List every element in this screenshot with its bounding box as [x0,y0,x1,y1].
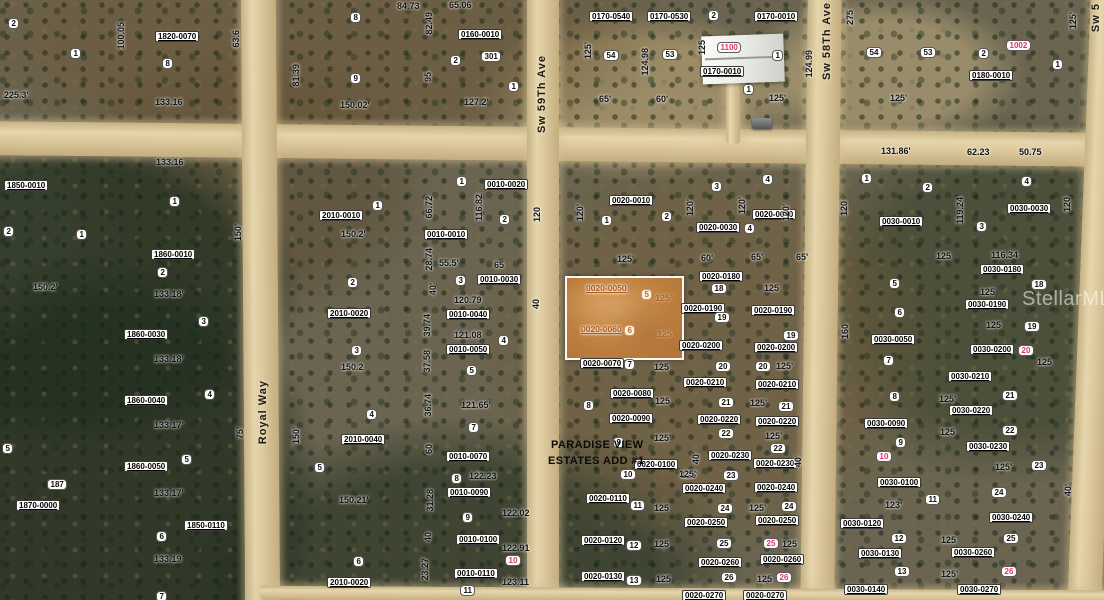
lot-number-badge: 9 [462,512,473,523]
parcel-id-label: 0020-0090 [609,413,653,424]
dimension-label: 65' [796,252,808,262]
parcel-id-label: 0030-0120 [840,518,884,529]
dimension-label: 133.19 [154,554,182,564]
lot-number-badge: 8 [451,473,462,484]
dimension-label: 123' [885,500,902,510]
dimension-label: 125' [617,254,634,264]
parcel-id-label: 0030-0090 [864,418,908,429]
parcel-id-label: 0030-0270 [957,584,1001,595]
dimension-label: 125 [940,427,955,437]
parcel-id-label: 0020-0180 [699,271,743,282]
parcel-id-label: 0030-0130 [858,548,902,559]
dimension-label-vertical: 40 [423,532,433,542]
lot-number-badge: 2 [661,211,672,222]
dimension-label: 125' [749,503,766,513]
lot-number-badge: 6 [156,531,167,542]
lot-number-badge: 1 [169,196,180,207]
lot-number-badge: 23 [1031,460,1047,471]
lot-number-badge: 12 [891,533,907,544]
dimension-label: 121.65' [461,400,491,410]
lot-number-badge-highlighted: 25 [763,538,779,549]
dimension-label: 150.2 [341,362,364,372]
dimension-label: 133.17' [154,420,184,430]
lot-number-badge: 3 [455,275,466,286]
dimension-label: 127.2' [464,97,489,107]
parcel-id-label: 0020-0260 [760,554,804,565]
parcel-id-label: 0020-0080 [610,388,654,399]
parcel-id-label: 0020-0220 [697,414,741,425]
dimension-label: 125 [654,539,669,549]
parcel-id-label: 0030-0260 [951,547,995,558]
lot-number-badge: 2 [347,277,358,288]
lot-number-badge: 7 [624,359,635,370]
parcel-id-label: 1820-0070 [155,31,199,42]
dimension-label-vertical: 23.27 [420,558,430,581]
dimension-label-vertical: 40' [793,455,803,467]
lot-number-badge: 25 [1003,533,1019,544]
lot-number-badge: 3 [711,181,722,192]
dimension-label: 125 [764,283,779,293]
lot-number-badge: 26 [721,572,737,583]
lot-number-badge: 12 [626,540,642,551]
parcel-id-label: 0160-0010 [458,29,502,40]
parcel-id-label: 1860-0040 [124,395,168,406]
dimension-label: 125' [765,431,782,441]
dimension-label-vertical: 120' [575,204,585,221]
parcel-id-label: 0180-0010 [969,70,1013,81]
parcel-id-label: 0010-0050 [446,344,490,355]
watermark: StellarMLS [1022,288,1104,311]
dimension-label-vertical: 124.99 [804,50,814,78]
parcel-id-label: 0020-0070 [580,358,624,369]
dimension-label: 122.02 [502,508,530,518]
lot-number-badge-highlighted: 10 [876,451,892,462]
parcel-id-label: 0010-0030 [477,274,521,285]
lot-number-badge: 53 [662,49,678,60]
lot-number-badge: 3 [198,316,209,327]
lot-number-badge: 5 [181,454,192,465]
dimension-label-vertical: 120' [685,199,695,216]
lot-number-badge: 1 [743,84,754,95]
dimension-label: 121.08 [454,330,482,340]
lot-number-badge: 2 [978,48,989,59]
parcel-id-label: 0170-0010 [754,11,798,22]
lot-number-badge: 11 [630,500,645,511]
dimension-label-vertical: 37.58 [422,350,432,373]
dimension-label: 125' [679,469,696,479]
lot-number-badge: 1 [508,81,519,92]
dimension-label: 125' [941,569,958,579]
dimension-label-vertical: 63.6 [231,30,241,48]
lot-number-badge: 6 [353,556,364,567]
dimension-label: 60' [701,253,713,263]
dimension-label-vertical: 120 [1062,197,1072,212]
parcel-id-label: 0030-0240 [989,512,1033,523]
dimension-label-vertical: 28.74 [424,248,434,271]
parcel-id-label: 0010-0090 [447,487,491,498]
subdivision-name-line2: ESTATES ADD #1 [548,455,644,467]
subject-dimension-label: 125 [657,329,672,339]
parcel-id-label: 0170-0010 [700,66,744,77]
dimension-label: 125 [654,362,669,372]
parcel-id-label: 0030-0230 [966,441,1010,452]
parcel-id-label: 0030-0180 [980,264,1024,275]
parcel-id-label: 2010-0020 [327,308,371,319]
lot-number-badge: 5 [466,365,477,376]
dimension-label: 125 [656,574,671,584]
lot-number-badge: 19 [1024,321,1040,332]
dimension-label: 131.86' [881,146,911,156]
dimension-label: 116.34 [991,250,1018,260]
lot-number-badge: 20 [755,361,771,372]
dimension-label: 62.23 [967,147,990,157]
dimension-label: 125 [936,251,951,261]
dimension-label-vertical: 66.72 [424,196,434,219]
dimension-label: 125 [655,396,670,406]
parcel-id-label: 0030-0210 [948,371,992,382]
dimension-label-vertical: 125 [697,40,707,55]
parcel-id-label: 0030-0010 [879,216,923,227]
dimension-label: 225.3' [4,90,29,100]
lot-number-badge: 4 [498,335,509,346]
dimension-label-vertical: 95 [423,72,433,82]
dimension-label: 150.2' [341,229,366,239]
dimension-label: 60' [656,94,668,104]
lot-number-badge: 2 [3,226,14,237]
parcel-id-label: 0020-0220 [755,416,799,427]
lot-number-badge: 8 [350,12,361,23]
dimension-label: 125' [995,462,1012,472]
lot-number-badge: 10 [620,469,636,480]
lot-number-badge: 7 [156,591,167,600]
lot-number-badge: 1 [76,229,87,240]
dimension-label-vertical: 120 [839,201,849,216]
dimension-label-vertical: 39.74 [422,314,432,337]
road-name-label: Sw 5 [1090,3,1103,32]
lot-number-badge: 11 [925,494,940,505]
dimension-label-vertical: 150' [233,224,243,241]
dimension-label-vertical: 119.24 [955,197,965,224]
parcel-id-label: 1850-0110 [184,520,228,531]
dimension-label: 65.06 [449,0,472,10]
dimension-label: 125 [986,320,1001,330]
parcel-id-label: 1870-0000 [16,500,60,511]
lot-number-badge: 2 [708,10,719,21]
lot-number-badge: 24 [717,503,733,514]
parcel-id-label: 0020-0270 [743,590,787,600]
dimension-label: 65' [599,94,611,104]
dimension-label-vertical: 160 [840,324,850,339]
parcel-id-label: 0020-0200 [754,342,798,353]
lot-number-badge-highlighted: 20 [1018,345,1034,356]
dimension-label-vertical: 75' [235,427,245,439]
lot-number-badge: 8 [889,391,900,402]
lot-number-badge: 21 [778,401,794,412]
parcel-id-label: 0020-0210 [755,379,799,390]
dimension-label: 125 [782,539,797,549]
dimension-label-vertical: 60 [424,444,434,454]
dimension-label: 122.91 [502,543,530,553]
parcel-id-label: 0170-0540 [589,11,633,22]
lot-number-badge: 18 [711,283,727,294]
dimension-label-vertical: 82.49 [424,12,434,35]
dimension-label-vertical: 120' [781,204,791,221]
lot-number-badge-highlighted: 26 [776,572,792,583]
dimension-label-vertical: 116.82 [474,194,484,221]
lot-number-badge: 53 [920,47,936,58]
map-canvas[interactable]: 211820-00708225.3'133.16100.0563.6881.39… [0,0,1104,600]
parcel-id-label: 0030-0050 [871,334,915,345]
lot-number-badge: 11 [460,585,475,596]
parcel-id-label: 0030-0030 [1007,203,1051,214]
dimension-label-vertical: 36.74 [423,394,433,417]
lot-number-badge: 13 [626,575,642,586]
road-name-label: Sw 59Th Ave [536,55,549,133]
parcel-id-label: 0020-0250 [755,515,799,526]
dimension-label: 133.17' [154,488,184,498]
lot-number-badge-highlighted: 1002 [1006,40,1031,51]
dimension-label: 150.21' [339,495,369,505]
lot-number-badge: 8 [583,400,594,411]
lot-number-badge: 301 [481,51,501,62]
parcel-id-label: 0020-0270 [682,590,726,600]
lot-number-badge: 8 [162,58,173,69]
lot-number-badge: 9 [895,437,906,448]
lot-number-badge: 4 [366,409,377,420]
parcel-id-label: 1860-0010 [151,249,195,260]
dimension-label: 125' [769,93,786,103]
lot-number-badge: 5 [2,443,13,454]
parcel-id-label: 0020-0030 [696,222,740,233]
parcel-id-label: 0010-0070 [446,451,490,462]
lot-number-badge: 23 [723,470,739,481]
lot-number-badge: 4 [762,174,773,185]
parcel-id-label: 0020-0120 [581,535,625,546]
lot-number-badge: 6 [894,307,905,318]
dimension-label-vertical: 40' [428,283,438,295]
parcel-id-label: 0030-0220 [949,405,993,416]
dimension-label: 65' [751,252,763,262]
dimension-label: 84.73 [397,1,420,11]
lot-number-badge: 2 [8,18,19,29]
lot-number-badge-highlighted: 10 [505,555,521,566]
parcel-id-label: 0030-0200 [970,344,1014,355]
dimension-label: 125' [654,433,671,443]
subject-lot-badge: 5 [641,289,652,300]
dimension-label: 125 [1037,357,1052,367]
lot-number-badge: 9 [350,73,361,84]
lot-number-badge: 7 [883,355,894,366]
dimension-label-vertical: 40' [691,452,701,464]
lot-number-badge: 2 [922,182,933,193]
lot-number-badge: 21 [718,397,734,408]
parcel-id-label: 0020-0200 [679,340,723,351]
lot-number-badge: 25 [716,538,732,549]
parcel-id-label: 0020-0250 [684,517,728,528]
lot-number-badge: 3 [351,345,362,356]
parcel-id-label: 0020-0110 [586,493,630,504]
subject-dimension-label: 125' [655,293,672,303]
lot-number-badge: 19 [783,330,799,341]
parcel-id-label: 0020-0240 [754,482,798,493]
lot-number-badge: 21 [1002,390,1018,401]
dimension-label: 150.2' [33,282,58,292]
lot-number-badge: 187 [47,479,67,490]
parcel-id-label: 0010-0010 [424,229,468,240]
lot-number-badge: 13 [894,566,910,577]
parcel-id-label: 0020-0190 [751,305,795,316]
dimension-label-vertical: 120 [532,207,542,222]
parcel-id-label: 0010-0020 [484,179,528,190]
dimension-label-vertical: 40 [531,299,541,309]
lot-number-badge: 19 [714,312,730,323]
dimension-label-vertical: 31.28 [425,489,435,512]
dimension-label-vertical: 40' [1063,484,1073,496]
driveway [726,78,740,144]
vehicle [752,118,772,129]
dimension-label: 50.75 [1019,147,1042,157]
dimension-label-vertical: 81.39 [291,64,301,87]
dimension-label: 55.5' [439,258,459,268]
parcel-id-label: 0030-0100 [877,477,921,488]
parcel-id-label: 0020-0130 [581,571,625,582]
lot-number-badge: 22 [1002,425,1018,436]
parcel-id-label: 1860-0050 [124,461,168,472]
dimension-label-vertical: 100.05 [116,22,126,50]
dimension-label: 125' [939,394,956,404]
lot-number-badge: 1 [70,48,81,59]
dimension-label: 65 [494,260,504,270]
parcel-id-label: 0030-0140 [844,584,888,595]
subdivision-name-line1: PARADISE VIEW [551,439,643,451]
lot-number-badge: 20 [715,361,731,372]
parcel-id-label: 2010-0010 [319,210,363,221]
dimension-label: 133.16 [156,157,184,167]
road-name-label: Royal Way [257,380,270,444]
road-name-label: Sw 58Th Ave [821,2,834,80]
lot-number-badge: 5 [889,278,900,289]
lot-number-badge: 54 [603,50,619,61]
subject-parcel-id-label: 0020-0060 [581,325,622,335]
lot-number-badge: 1 [372,200,383,211]
dimension-label: 125' [776,361,793,371]
lot-number-badge: 7 [468,422,479,433]
dimension-label-vertical: 125' [583,42,593,59]
lot-number-badge: 2 [499,214,510,225]
dimension-label-vertical: 275 [845,10,855,25]
dimension-label: 120.79 [454,295,482,305]
parcel-id-label: 1850-0010 [4,180,48,191]
lot-number-badge: 1 [861,173,872,184]
dimension-label: 125 [757,574,772,584]
lot-number-badge: 4 [1021,176,1032,187]
lot-number-badge: 1 [456,176,467,187]
lot-number-badge: 54 [866,47,882,58]
lot-number-badge: 2 [157,267,168,278]
lot-number-badge: 2 [450,55,461,66]
parcel-id-label: 0020-0240 [682,483,726,494]
dimension-label: 125 [980,287,995,297]
dimension-label: 133.16 [155,97,183,107]
parcel-id-label: 0020-0210 [683,377,727,388]
parcel-id-label: 2010-0040 [341,434,385,445]
lot-number-badge: 1 [772,50,783,61]
subject-lot-badge: 6 [624,325,635,336]
dimension-label-vertical: 125' [1068,12,1078,29]
lot-number-badge: 1 [601,215,612,226]
dimension-label: 125 [654,503,669,513]
roof-ridge [705,56,780,61]
lot-number-badge: 3 [976,221,987,232]
parcel-id-label: 0030-0190 [965,299,1009,310]
lot-number-badge: 24 [991,487,1007,498]
dimension-label-vertical: 124.98 [640,48,650,76]
parcel-id-label: 1860-0030 [124,329,168,340]
parcel-id-label: 0020-0230 [753,458,797,469]
lot-number-badge: 5 [314,462,325,473]
parcel-id-label: 0020-0230 [708,450,752,461]
parcel-id-label: 0020-0010 [609,195,653,206]
lot-number-badge: 4 [744,223,755,234]
parcel-id-label: 0020-0260 [698,557,742,568]
dimension-label: 150.02' [340,100,370,110]
dimension-label: 125' [750,398,767,408]
dimension-label: 133.18' [154,354,184,364]
lot-number-badge: 4 [204,389,215,400]
dimension-label: 122.23 [469,471,497,481]
subject-parcel-id-label: 0020-0050 [586,284,627,294]
royal-way-road [241,0,280,600]
parcel-id-label: 0010-0110 [454,568,498,579]
dimension-label-vertical: 120' [737,197,747,214]
parcel-id-label: 2010-0020 [327,577,371,588]
lot-number-badge-highlighted: 26 [1001,566,1017,577]
lot-number-badge: 22 [770,443,786,454]
dimension-label-vertical: 150' [291,427,301,444]
lot-number-badge: 22 [718,428,734,439]
dimension-label: 123.11 [502,577,529,587]
dimension-label: 125 [941,535,956,545]
lot-number-badge: 1 [1052,59,1063,70]
parcel-id-label: 0170-0530 [647,11,691,22]
parcel-id-label: 0010-0040 [446,309,490,320]
parcel-id-label: 0010-0100 [456,534,500,545]
dimension-label: 133.18' [154,289,184,299]
lot-number-badge-highlighted: 1100 [717,42,741,53]
lot-number-badge: 24 [781,501,797,512]
dimension-label: 125' [890,93,907,103]
